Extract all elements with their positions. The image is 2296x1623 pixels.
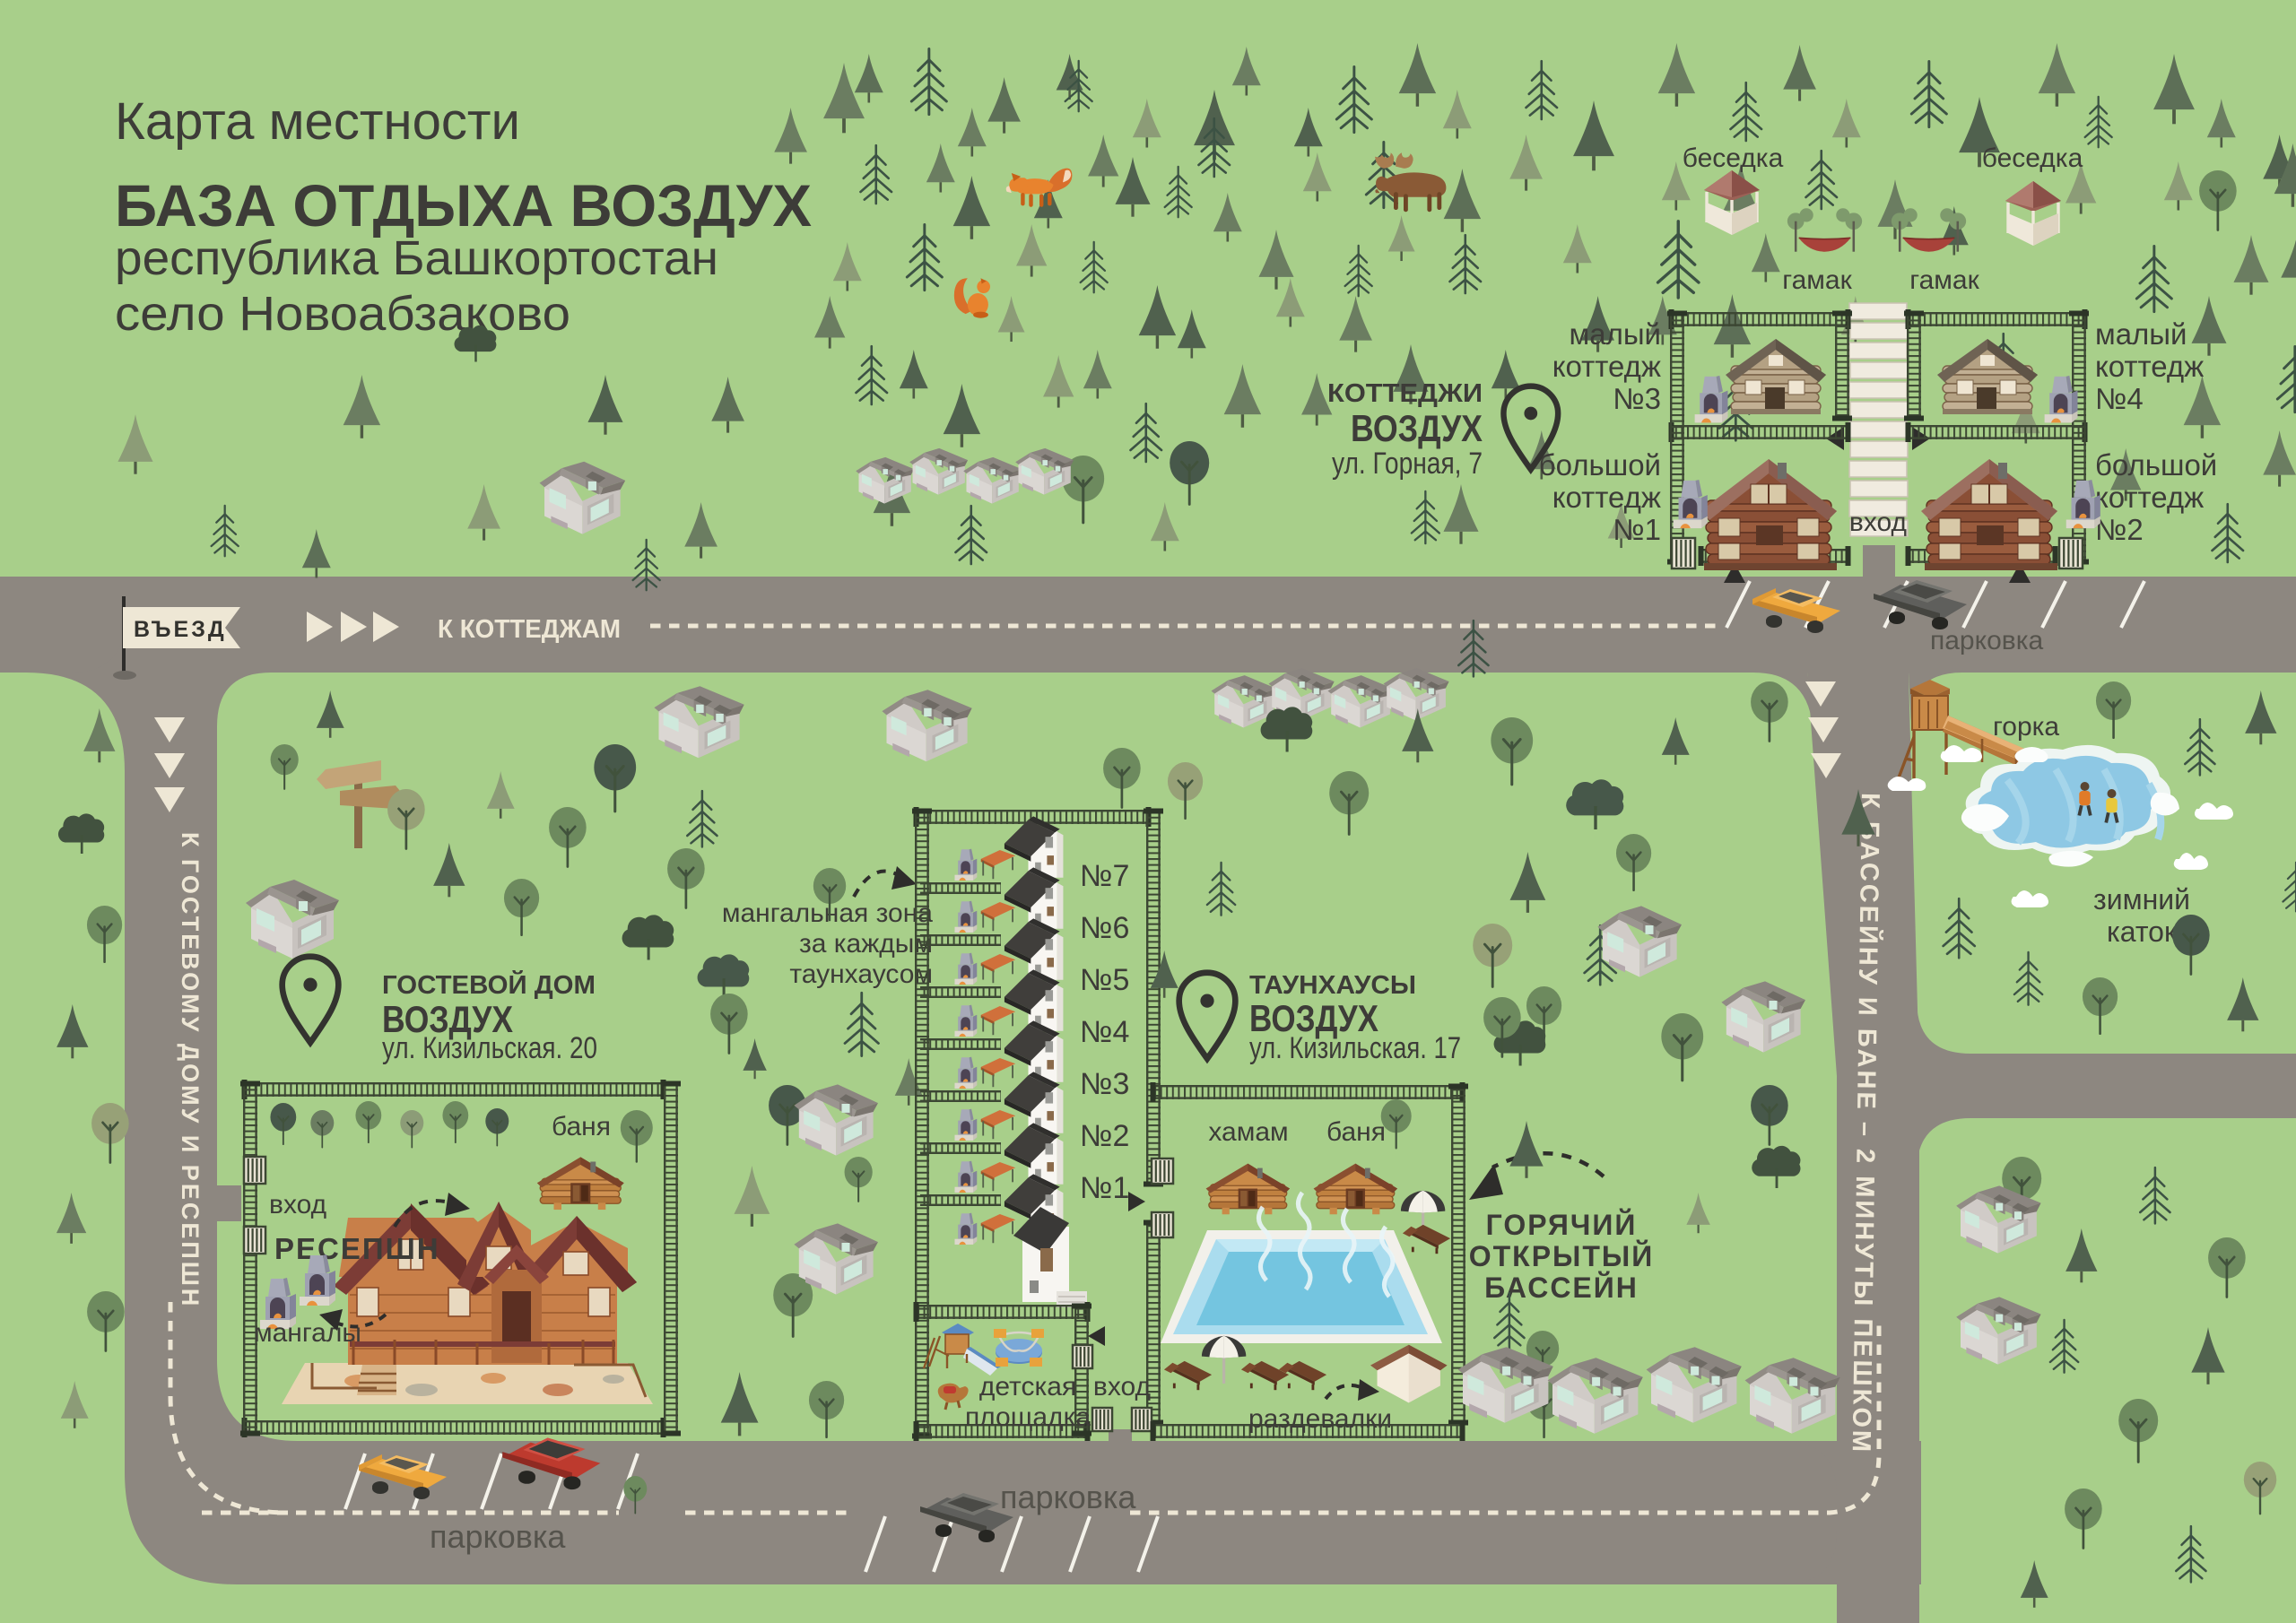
- svg-text:мангалы: мангалы: [254, 1318, 361, 1348]
- svg-text:№7: №7: [1080, 859, 1129, 893]
- svg-text:№2: №2: [2095, 513, 2144, 546]
- svg-text:ул. Кизильская. 17: ул. Кизильская. 17: [1249, 1031, 1461, 1065]
- svg-text:вход: вход: [1093, 1372, 1151, 1402]
- svg-text:ТАУНХАУСЫ: ТАУНХАУСЫ: [1249, 971, 1416, 1000]
- svg-text:раздевалки: раздевалки: [1248, 1404, 1392, 1434]
- svg-text:зимний: зимний: [2093, 883, 2190, 916]
- svg-text:коттедж: коттедж: [1552, 481, 1661, 514]
- svg-text:КОТТЕДЖИ: КОТТЕДЖИ: [1327, 379, 1483, 408]
- svg-text:К ГОСТЕВОМУ ДОМУ И РЕСЕПШН: К ГОСТЕВОМУ ДОМУ И РЕСЕПШН: [177, 832, 204, 1308]
- svg-text:за каждым: за каждым: [799, 929, 933, 959]
- svg-text:большой: большой: [1539, 448, 1661, 482]
- svg-text:ВЪЕЗД: ВЪЕЗД: [134, 617, 227, 642]
- svg-text:республика Башкортостан: республика Башкортостан: [115, 231, 718, 285]
- svg-text:К КОТТЕДЖАМ: К КОТТЕДЖАМ: [438, 615, 621, 644]
- svg-text:ВОЗДУХ: ВОЗДУХ: [1351, 407, 1483, 449]
- svg-text:коттедж: коттедж: [2095, 350, 2204, 383]
- svg-text:баня: баня: [1326, 1117, 1386, 1147]
- svg-text:горка: горка: [1993, 712, 2059, 742]
- svg-text:коттедж: коттедж: [2095, 481, 2204, 514]
- svg-text:площадка: площадка: [965, 1402, 1091, 1432]
- svg-text:беседка: беседка: [1683, 143, 1784, 173]
- svg-text:детская: детская: [979, 1372, 1076, 1402]
- svg-text:парковка: парковка: [430, 1518, 566, 1555]
- svg-text:ул. Кизильская. 20: ул. Кизильская. 20: [382, 1031, 597, 1065]
- svg-text:гамак: гамак: [1909, 265, 1979, 295]
- svg-text:гамак: гамак: [1782, 265, 1852, 295]
- svg-text:№1: №1: [1080, 1171, 1129, 1205]
- svg-text:№1: №1: [1613, 513, 1661, 546]
- svg-text:ГОРЯЧИЙ: ГОРЯЧИЙ: [1486, 1209, 1638, 1241]
- svg-text:№6: №6: [1080, 911, 1129, 945]
- svg-text:село Новоабзаково: село Новоабзаково: [115, 287, 570, 341]
- svg-text:каток: каток: [2107, 916, 2178, 948]
- svg-text:№3: №3: [1613, 382, 1661, 415]
- svg-text:ГОСТЕВОЙ ДОМ: ГОСТЕВОЙ ДОМ: [382, 969, 596, 1000]
- svg-text:коттедж: коттедж: [1552, 350, 1661, 383]
- svg-text:№4: №4: [1080, 1015, 1129, 1049]
- svg-text:№2: №2: [1080, 1119, 1129, 1153]
- svg-text:ОТКРЫТЫЙ: ОТКРЫТЫЙ: [1469, 1240, 1655, 1272]
- svg-text:РЕСЕПШН: РЕСЕПШН: [274, 1232, 440, 1265]
- svg-text:хамам: хамам: [1208, 1117, 1288, 1147]
- svg-text:большой: большой: [2095, 448, 2217, 482]
- svg-text:ул. Горная, 7: ул. Горная, 7: [1332, 447, 1483, 481]
- svg-text:вход: вход: [1849, 508, 1907, 537]
- svg-text:малый: малый: [2095, 317, 2187, 351]
- svg-text:парковка: парковка: [1930, 626, 2043, 655]
- svg-text:№5: №5: [1080, 963, 1129, 997]
- svg-text:БАССЕЙН: БАССЕЙН: [1484, 1271, 1639, 1304]
- svg-text:парковка: парковка: [1000, 1479, 1136, 1515]
- svg-text:баня: баня: [552, 1112, 611, 1141]
- svg-text:Карта местности: Карта местности: [115, 92, 520, 151]
- svg-text:малый: малый: [1570, 317, 1661, 351]
- svg-text:БАЗА ОТДЫХА ВОЗДУХ: БАЗА ОТДЫХА ВОЗДУХ: [115, 172, 812, 239]
- svg-text:№3: №3: [1080, 1067, 1129, 1101]
- svg-text:вход: вход: [269, 1190, 326, 1219]
- svg-text:таунхаусом: таунхаусом: [789, 959, 933, 989]
- svg-text:беседка: беседка: [1982, 143, 2083, 173]
- svg-text:№4: №4: [2095, 382, 2144, 415]
